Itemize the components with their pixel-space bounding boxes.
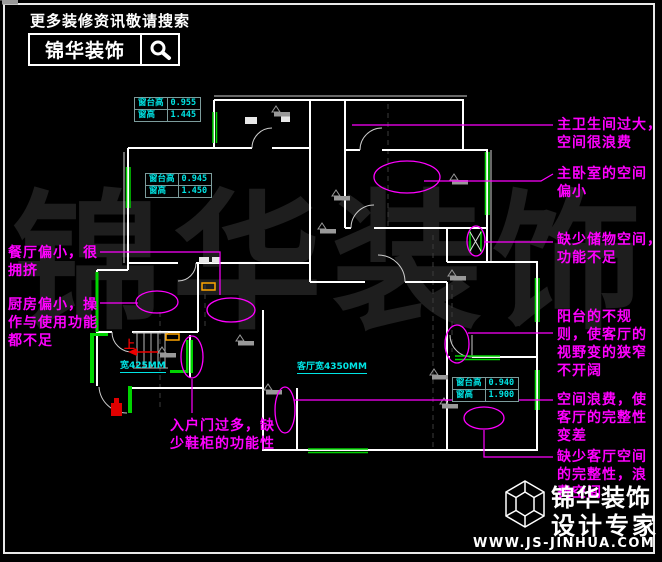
construction-lines: [160, 104, 452, 450]
dim-label: 窗台高: [146, 174, 179, 186]
dim-value: 1.450: [178, 186, 211, 198]
dim-label: 窗高: [453, 390, 486, 402]
dim-value: 0.955: [167, 98, 200, 110]
header-brand-box: 锦华装饰: [28, 33, 180, 66]
width-dim-label: 宽425MM: [120, 361, 166, 373]
annotation-storage: 缺少储物空间， 功能不足: [557, 231, 662, 267]
window-dim-table-3: 窗台高 0.940 窗高 1.900: [452, 377, 519, 402]
dim-value: 1.900: [485, 390, 518, 402]
annotation-kitchen: 厨房偏小，操 作与使用功能 都不足: [8, 296, 98, 350]
footer-website: WWW.JS-JINHUA.COM: [473, 536, 655, 551]
green-door-elements: [90, 272, 193, 413]
hydrant-symbol: [111, 398, 122, 416]
dim-label: 窗台高: [453, 378, 486, 390]
dim-value: 0.940: [485, 378, 518, 390]
level-marker: [0, 0, 18, 5]
dim-label: 窗高: [146, 186, 179, 198]
annotation-space-waste: 空间浪费，使 客厅的完整性 变差: [557, 391, 647, 445]
annotation-dining: 餐厅偏小，很 拥挤: [8, 244, 98, 280]
up-label: 上: [124, 337, 135, 351]
footer-cube-logo: [501, 478, 549, 532]
annotation-master-bath: 主卫生间过大， 空间很浪费: [557, 116, 662, 152]
annotation-entry: 入户门过多，缺 少鞋柜的功能性: [170, 417, 275, 453]
annotation-master-bedroom: 主卧室的空间 偏小: [557, 165, 647, 201]
dim-label: 窗台高: [135, 98, 168, 110]
callout-ellipses: [136, 161, 504, 433]
header-brand-name: 锦华装饰: [30, 36, 140, 63]
window-dim-table-1: 窗台高 0.955 窗高 1.445: [134, 97, 201, 122]
search-icon: [142, 38, 178, 62]
cad-floorplan-image: 锦华装饰: [0, 0, 662, 562]
dim-value: 1.445: [167, 110, 200, 122]
header-tagline: 更多装修资讯敬请搜索: [30, 10, 190, 31]
dim-label: 窗高: [135, 110, 168, 122]
annotation-balcony: 阳台的不规 则，使客厅的 视野变的狭窄 不开阔: [557, 308, 647, 380]
storage-door: [470, 231, 481, 252]
dim-value: 0.945: [178, 174, 211, 186]
living-width-dim-label: 客厅宽4350MM: [297, 362, 367, 374]
window-dim-table-2: 窗台高 0.945 窗高 1.450: [145, 173, 212, 198]
